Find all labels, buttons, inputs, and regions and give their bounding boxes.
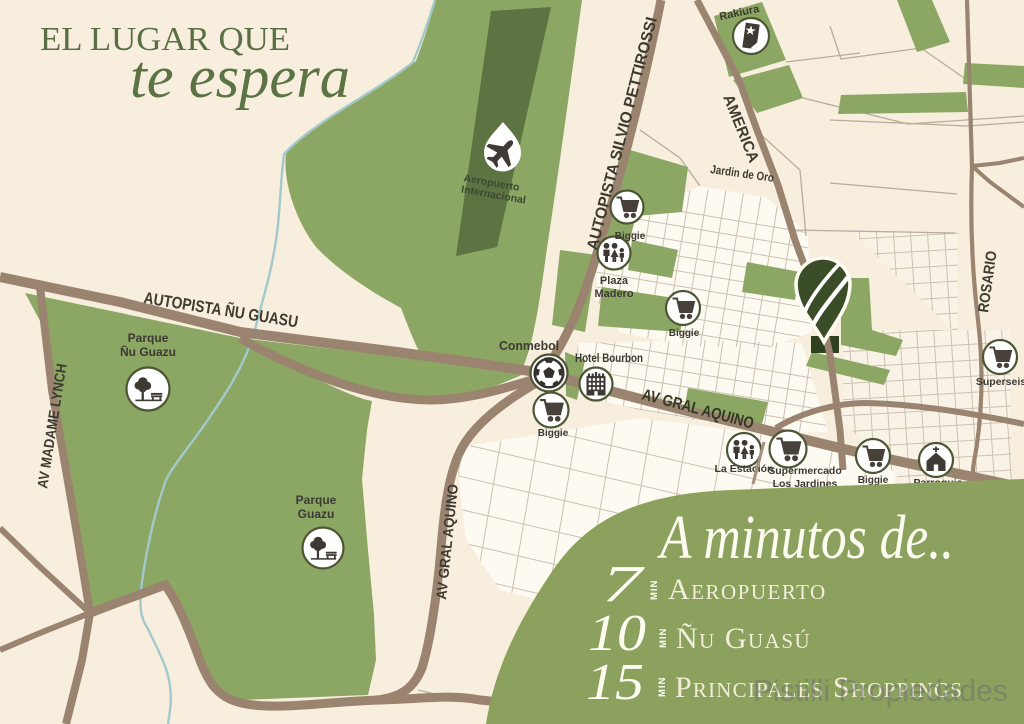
svg-text:MIN: MIN: [657, 677, 668, 697]
svg-text:Conmebol: Conmebol: [499, 338, 559, 353]
svg-text:Supermercado: Supermercado: [768, 465, 842, 477]
svg-text:A minutos de..: A minutos de..: [657, 504, 954, 572]
svg-text:Madero: Madero: [594, 288, 633, 300]
svg-text:15: 15: [586, 654, 644, 711]
svg-text:Biggie: Biggie: [669, 328, 700, 339]
svg-text:La Estación: La Estación: [715, 463, 774, 475]
svg-text:Ñu Guasú: Ñu Guasú: [676, 622, 811, 655]
svg-text:Plaza: Plaza: [600, 275, 629, 287]
svg-text:Parque: Parque: [128, 331, 169, 345]
svg-text:Aeropuerto: Aeropuerto: [668, 573, 827, 606]
svg-text:Parque: Parque: [296, 493, 337, 507]
svg-text:Guazu: Guazu: [298, 507, 335, 521]
svg-text:MIN: MIN: [649, 580, 660, 600]
svg-text:Hotel Bourbon: Hotel Bourbon: [575, 351, 643, 365]
svg-text:te espera: te espera: [130, 44, 350, 110]
svg-text:Biggie: Biggie: [615, 231, 646, 242]
svg-text:Pistilli Propiedades: Pistilli Propiedades: [753, 673, 1008, 708]
svg-text:Superseis: Superseis: [976, 376, 1024, 388]
svg-text:MIN: MIN: [658, 628, 669, 648]
svg-text:Biggie: Biggie: [538, 428, 569, 439]
svg-text:Ñu Guazu: Ñu Guazu: [120, 344, 176, 359]
